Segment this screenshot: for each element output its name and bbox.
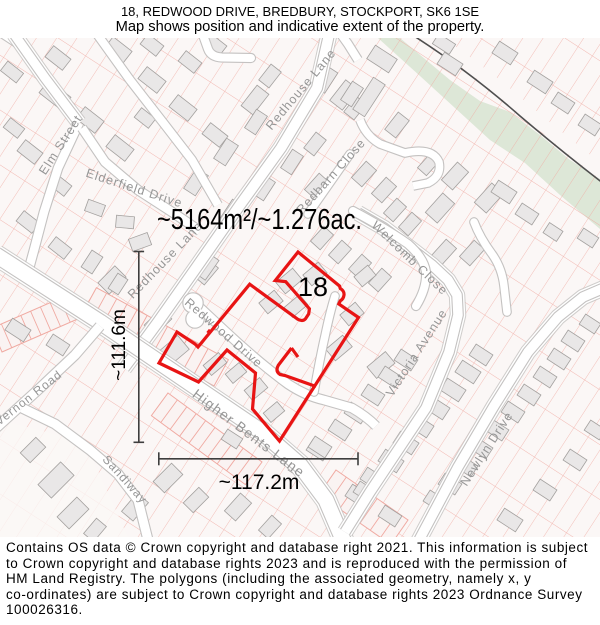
svg-text:~111.6m: ~111.6m (109, 309, 130, 381)
svg-text:18: 18 (298, 272, 328, 302)
svg-text:~5164m²/~1.276ac.: ~5164m²/~1.276ac. (157, 204, 362, 236)
svg-text:~117.2m: ~117.2m (219, 471, 300, 494)
